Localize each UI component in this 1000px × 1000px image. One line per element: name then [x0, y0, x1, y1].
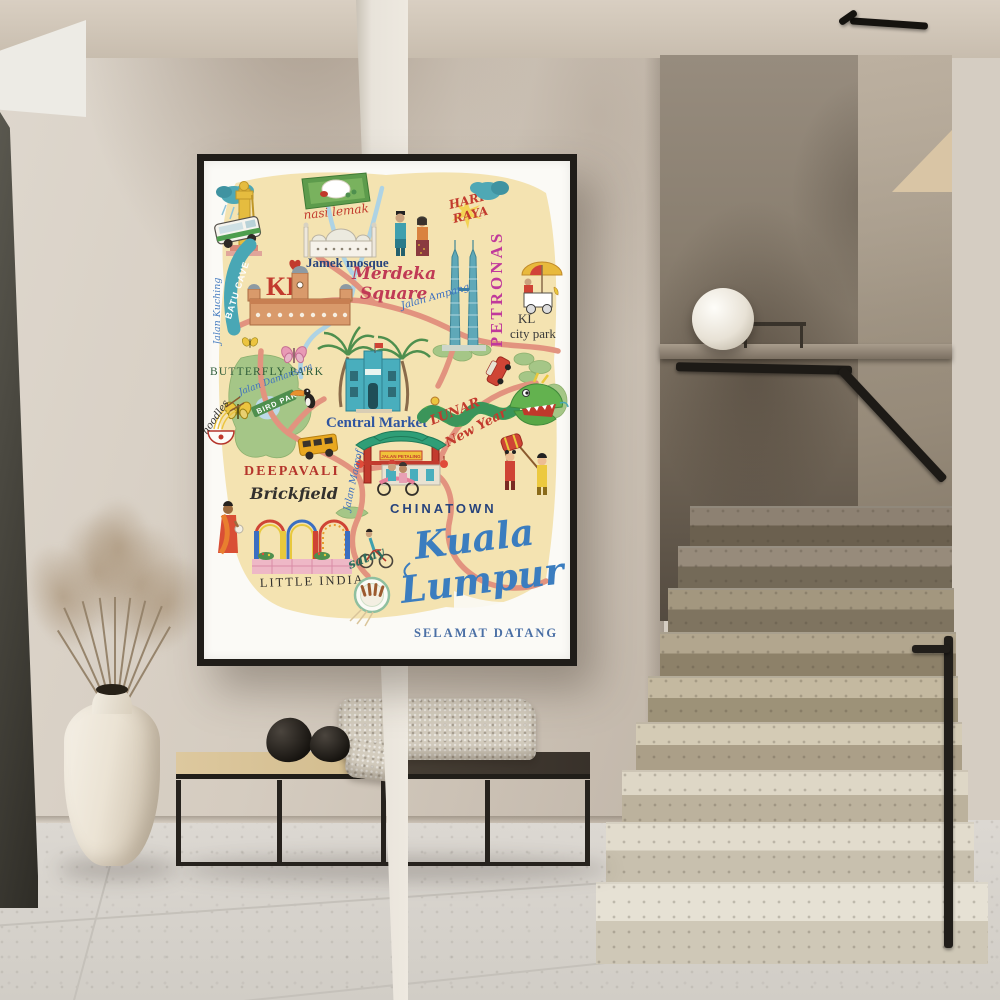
stair-step [648, 676, 958, 722]
petronas-label: PETRONAS [487, 231, 506, 348]
framed-kl-map-poster: BATU CAVE Jalan Kuching KL nasi lemak [197, 154, 577, 666]
bench-leg [381, 780, 386, 864]
jalan-kuching-label: Jalan Kuching [212, 278, 223, 347]
bench-leg [485, 780, 490, 864]
bench-leg [277, 780, 282, 864]
bench-bottom-rail [176, 862, 590, 866]
ceramic-vase [64, 702, 160, 866]
flower-icon [431, 397, 439, 405]
hallway-scene: BATU CAVE Jalan Kuching KL nasi lemak [0, 0, 1000, 1000]
central-market-label: Central Market [326, 415, 427, 431]
bench-leg [585, 780, 590, 864]
ceramic-vase-opening [96, 684, 128, 695]
kl-city-park-label-2: city park [510, 326, 556, 341]
sphere-lamp [692, 288, 754, 350]
stair-step [596, 882, 988, 964]
bench-leg [176, 780, 181, 864]
stair-step [668, 588, 954, 632]
stair-step [636, 722, 962, 770]
upper-handrail [850, 17, 928, 29]
selamat-datang-label: SELAMAT DATANG [414, 626, 558, 640]
stair-step [660, 632, 956, 676]
stair-step [606, 822, 974, 882]
staircase [592, 0, 1000, 1000]
kl-map-illustration: BATU CAVE Jalan Kuching KL nasi lemak [204, 161, 570, 659]
handrail-bracket [912, 645, 950, 653]
merdeka-label-1: Merdeka [351, 264, 436, 284]
brickfield-label: Brickfield [249, 484, 338, 503]
deepavali-label: DEEPAVALI [244, 464, 340, 479]
stair-step [622, 770, 968, 822]
stair-step [690, 506, 952, 546]
handrail-post [944, 636, 953, 948]
half-wall-ledge [660, 344, 952, 359]
console-table-leg [800, 326, 803, 348]
chinatown-label: CHINATOWN [390, 501, 497, 516]
kl-city-park-label-1: KL [518, 311, 535, 326]
stair-step [678, 546, 952, 588]
petaling-sign-label: JALAN PETALING [381, 454, 421, 459]
